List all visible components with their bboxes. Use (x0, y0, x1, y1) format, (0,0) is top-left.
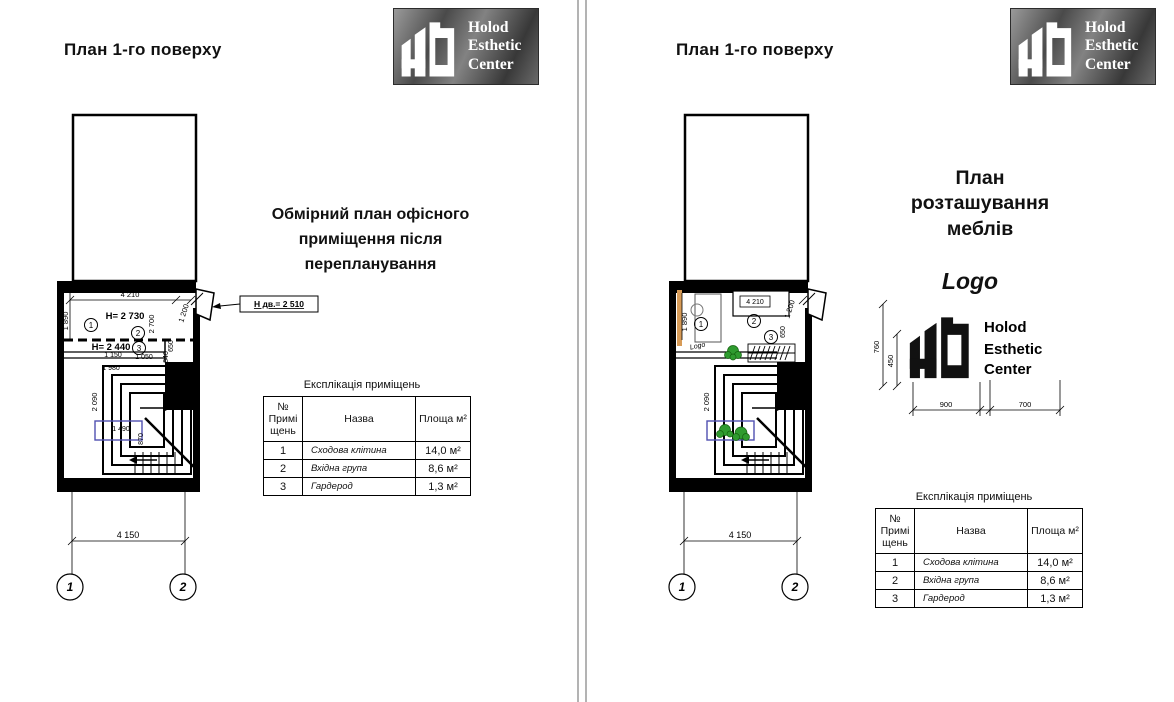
plant-icon (717, 425, 734, 438)
dim-label: 3 850 (55, 389, 64, 408)
height-label: H= 2 730 (106, 311, 145, 322)
axis-number: 1 (67, 580, 74, 594)
brand-line: Esthetic (1085, 37, 1138, 54)
col-header-no: № Примі щень (264, 397, 303, 442)
brand-line: Holod (468, 19, 508, 36)
table-header-row: № Примі щень Назва Площа м² (876, 509, 1083, 554)
room-number: 3 (137, 344, 142, 353)
cell-no: 3 (876, 590, 915, 608)
brand-line: Esthetic (468, 37, 521, 54)
table-row: 1 Сходова клітина 14,0 м² (876, 554, 1083, 572)
brand-logo-badge: Holod Esthetic Center (1010, 8, 1156, 85)
dim-label: 1 490 (112, 426, 130, 433)
dim-label: 650 (780, 326, 787, 338)
brand-line: Center (1085, 56, 1131, 73)
page-divider-line (577, 0, 579, 702)
brand-line: Holod (984, 319, 1027, 336)
room-number: 1 (89, 321, 94, 330)
logo-brand-text: Holod Esthetic Center (984, 319, 1042, 378)
dim-label: 700 (1019, 400, 1032, 409)
page-title-right: План 1-го поверху (676, 40, 834, 60)
axis-number: 1 (679, 580, 686, 594)
brand-line: Center (468, 56, 514, 73)
cell-no: 2 (264, 460, 303, 478)
brand-logo-icon (1017, 14, 1081, 80)
cell-no: 1 (876, 554, 915, 572)
axis-number: 2 (179, 580, 187, 594)
dim-label: 2 700 (147, 315, 156, 334)
table-row: 3 Гардерод 1,3 м² (264, 478, 471, 496)
dim-label: 4 150 (117, 530, 140, 540)
cell-name: Вхідна група (303, 460, 416, 478)
table-row: 2 Вхідна група 8,6 м² (876, 572, 1083, 590)
coat-rack (748, 344, 795, 362)
col-header-area: Площа м² (1028, 509, 1083, 554)
brand-logo-badge: Holod Esthetic Center (393, 8, 539, 85)
room-number: 1 (699, 320, 704, 329)
document-canvas: План 1-го поверху Holod Esthetic Center … (0, 0, 1174, 702)
table-header-row: № Примі щень Назва Площа м² (264, 397, 471, 442)
dim-label: 1 890 (61, 312, 70, 331)
door-height-callout: Н дв.= 2 510 (212, 296, 318, 312)
col-header-name: Назва (915, 509, 1028, 554)
page-title-left: План 1-го поверху (64, 40, 222, 60)
plan-logo-label: Logo (689, 341, 706, 351)
heading-line: меблів (947, 218, 1013, 240)
axis-number: 2 (791, 580, 799, 594)
axis-markers: 1 2 (57, 574, 196, 600)
dim-label: 4 150 (729, 530, 752, 540)
col-header-no: № Примі щень (876, 509, 915, 554)
cell-name: Вхідна група (915, 572, 1028, 590)
dim-label: 4 210 (746, 299, 764, 306)
cell-no: 1 (264, 442, 303, 460)
cell-name: Сходова клітина (915, 554, 1028, 572)
cell-area: 14,0 м² (416, 442, 471, 460)
dim-label: 4 210 (121, 290, 140, 299)
brand-logo-text: Holod Esthetic Center (468, 19, 521, 75)
dim-label: 840 (163, 351, 170, 363)
brand-line: Center (984, 361, 1032, 378)
table-title: Експлікація приміщень (263, 379, 461, 391)
cell-name: Гардерод (303, 478, 416, 496)
heading-line: План (955, 167, 1004, 189)
cell-area: 14,0 м² (1028, 554, 1083, 572)
plant-icon (733, 427, 750, 441)
brand-logo-icon (400, 14, 464, 80)
col-header-area: Площа м² (416, 397, 471, 442)
cell-no: 2 (876, 572, 915, 590)
dim-label: 2 090 (90, 393, 99, 412)
col-header-name: Назва (303, 397, 416, 442)
room-number: 2 (752, 317, 757, 326)
explication-table-right: Експлікація приміщень № Примі щень Назва… (875, 491, 1073, 608)
brand-line: Esthetic (984, 341, 1042, 358)
cell-area: 8,6 м² (1028, 572, 1083, 590)
dim-label: 650 (168, 340, 175, 352)
table-row: 2 Вхідна група 8,6 м² (264, 460, 471, 478)
explication-table-left: Експлікація приміщень № Примі щень Назва… (263, 379, 461, 496)
cell-area: 1,3 м² (1028, 590, 1083, 608)
cell-no: 3 (264, 478, 303, 496)
dim-label: 1 050 (135, 354, 153, 361)
plan-walls (57, 115, 200, 492)
page-divider-line (585, 0, 587, 702)
dim-label: 1 980 (102, 365, 120, 372)
door-height-label: Н дв.= 2 510 (254, 299, 304, 309)
cell-name: Гардерод (915, 590, 1028, 608)
floor-plan-measured: 4 210 1 200 1 890 H= 2 730 2 700 650 H= … (45, 108, 335, 618)
cell-area: 8,6 м² (416, 460, 471, 478)
dim-label: 2 090 (702, 393, 711, 412)
table-row: 3 Гардерод 1,3 м² (876, 590, 1083, 608)
table-title: Експлікація приміщень (875, 491, 1073, 503)
plan-dimension-labels: 4 210 1 200 1 890 H= 2 730 2 700 650 H= … (55, 290, 191, 540)
brand-logo-text: Holod Esthetic Center (1085, 19, 1138, 75)
cell-area: 1,3 м² (416, 478, 471, 496)
room-number: 3 (769, 333, 774, 342)
dim-label: 870 (138, 433, 145, 445)
table-row: 1 Сходова клітина 14,0 м² (264, 442, 471, 460)
room-number: 2 (136, 329, 141, 338)
dim-label: 1 150 (104, 352, 122, 359)
brand-line: Holod (1085, 19, 1125, 36)
axis-markers: 1 2 (669, 574, 808, 600)
dim-label: 1 890 (680, 313, 689, 332)
cell-name: Сходова клітина (303, 442, 416, 460)
dim-label: 1 200 (176, 303, 190, 324)
plant-icon (725, 346, 742, 361)
